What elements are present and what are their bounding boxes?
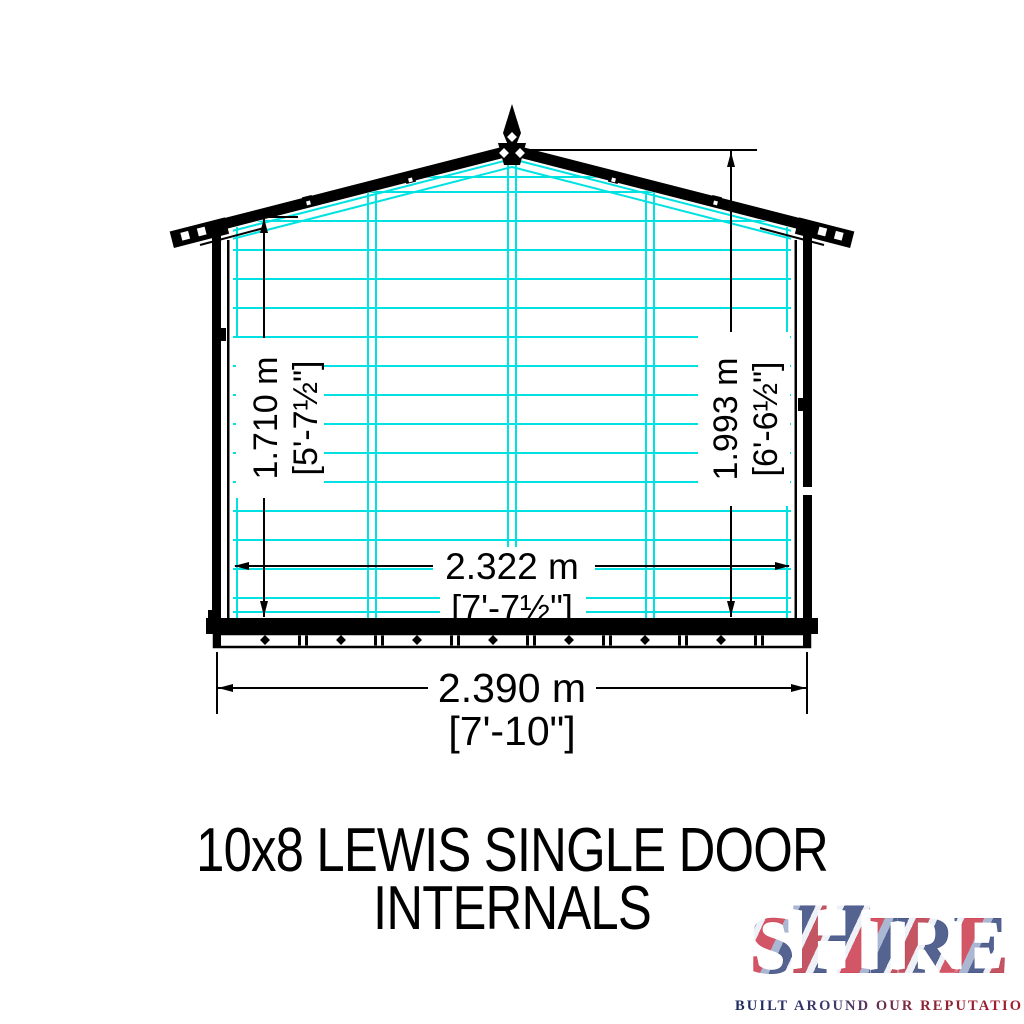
logo-letter: S [749,897,796,994]
external-width-metric: 2.390 m [438,665,586,711]
logo-letter: E [953,897,1009,994]
logo-letter: R [896,897,957,994]
drawing-title-line1: 10x8 LEWIS SINGLE DOOR [92,822,932,880]
eaves-height-metric: 1.710 m [247,357,285,480]
external-width-imperial: [7'-10"] [448,708,575,754]
internal-width-imperial: [7'-7½"] [451,587,573,628]
eaves-height-imperial: [5'-7½"] [287,361,325,476]
shire-logo: S H I R E BUILT AROUND OUR REPUTATION [735,880,1023,1015]
logo-letter: H [792,880,872,998]
ridge-height-imperial: [6'-6½"] [747,362,785,477]
left-wall [212,228,221,622]
right-wall [803,228,812,622]
shire-logo-wordmark: S H I R E [735,880,1023,998]
shed-internals-diagram: 1.710 m [5'-7½"] 1.993 m [6'-6½"] 2.322 … [0,0,1024,1024]
internal-width-metric: 2.322 m [445,546,579,587]
shed-elevation-drawing: 1.710 m [5'-7½"] 1.993 m [6'-6½"] 2.322 … [0,0,1024,800]
ridge-height-metric: 1.993 m [707,358,745,481]
logo-tagline: BUILT AROUND OUR REPUTATION [735,998,1023,1015]
